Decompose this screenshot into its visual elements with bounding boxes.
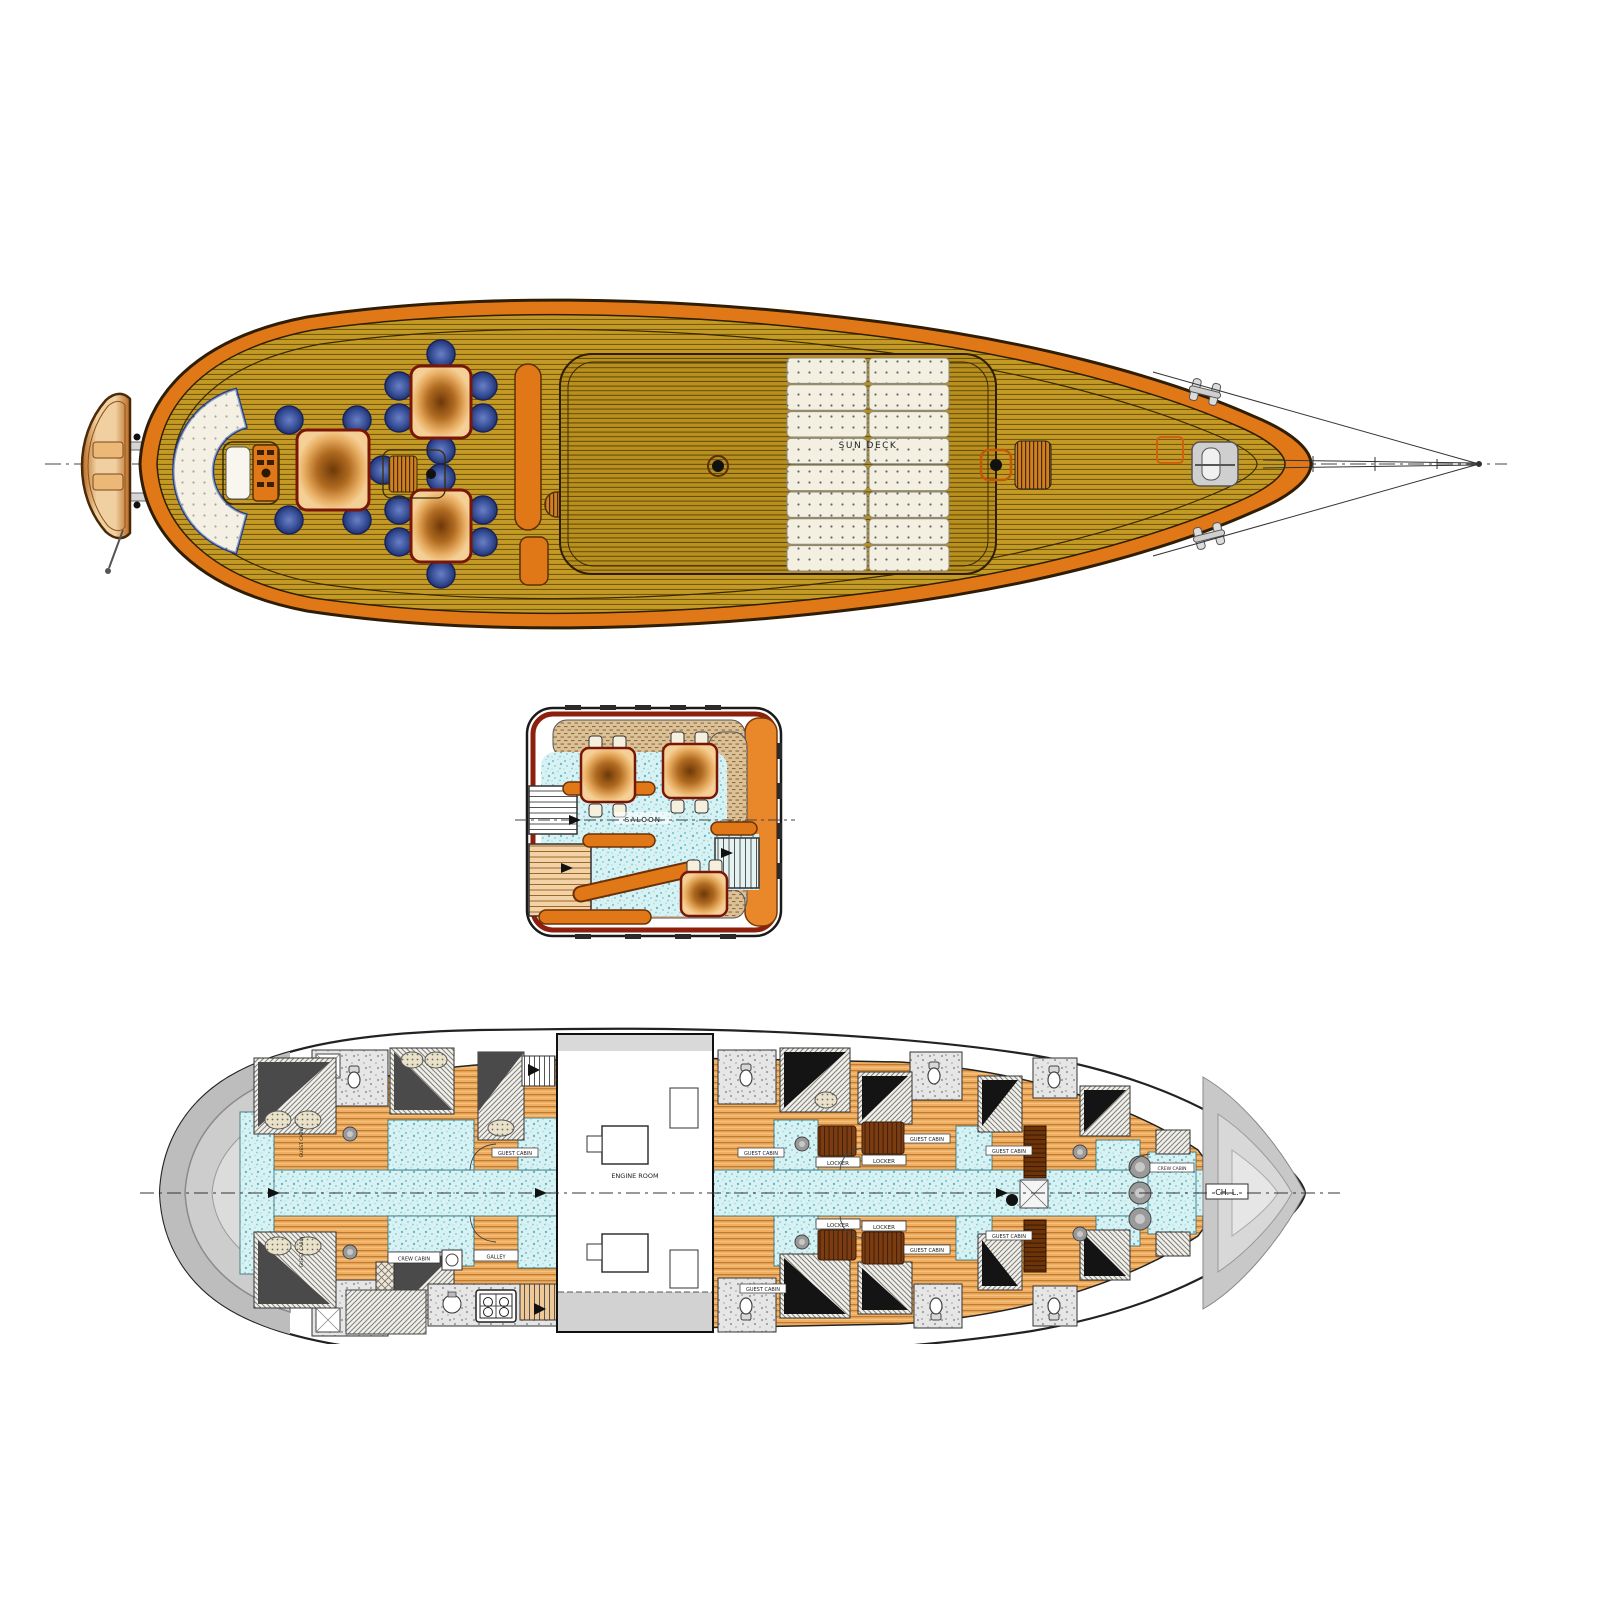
sun-deck-label: SUN DECK xyxy=(839,441,898,451)
locker-label: LOCKER xyxy=(873,1225,895,1231)
saloon-chair xyxy=(695,800,708,813)
generator xyxy=(670,1250,698,1288)
locker-cabinet xyxy=(818,1126,856,1156)
engine xyxy=(602,1126,648,1164)
engine-room: ENGINE ROOM xyxy=(557,1034,713,1332)
galley-label: GALLEY xyxy=(486,1255,506,1261)
deck-table xyxy=(297,430,369,510)
deck-chair xyxy=(275,406,303,434)
guest-cabin-label: GUEST CABIN xyxy=(992,1149,1026,1155)
crew-cabin-label: CREW CABIN xyxy=(398,1257,430,1263)
guest-cabin-label: GUEST CABIN xyxy=(910,1248,944,1254)
locker-cabinet xyxy=(1024,1220,1046,1272)
guest-cabin-label: GUEST CABIN xyxy=(299,1237,305,1268)
mizzen-mast xyxy=(1006,1194,1018,1206)
deck-chair xyxy=(427,560,455,588)
crew-cabin-label: CREW CABIN xyxy=(1158,1166,1187,1172)
void-space xyxy=(346,1290,426,1334)
main-mast xyxy=(712,460,724,472)
guest-cabin-label: GUEST CABIN xyxy=(498,1151,532,1157)
stairs-lower-left xyxy=(529,844,591,916)
sun-deck-plan: SUN DECK xyxy=(45,290,1515,640)
locker-label: LOCKER xyxy=(827,1161,849,1167)
saloon-table xyxy=(663,744,717,798)
deck-chair xyxy=(385,404,413,432)
helm-seat xyxy=(226,447,250,499)
engine xyxy=(602,1234,648,1272)
deck-chair xyxy=(385,496,413,524)
foredeck-grate xyxy=(1015,441,1051,489)
yacht-deck-plans: SUN DECK xyxy=(0,0,1600,1600)
deck-chair xyxy=(385,528,413,556)
guest-cabin-label: GUEST CABIN xyxy=(910,1137,944,1143)
galley-sink xyxy=(443,1295,461,1313)
locker-label: LOCKER xyxy=(827,1223,849,1229)
deck-chair xyxy=(385,372,413,400)
saloon-chair xyxy=(671,800,684,813)
deck-table xyxy=(411,366,471,438)
deck-chair xyxy=(469,528,497,556)
locker-cabinet xyxy=(862,1232,904,1264)
deck-chair xyxy=(427,340,455,368)
deck-table xyxy=(411,490,471,562)
deck-chair xyxy=(275,506,303,534)
washbasin xyxy=(442,1250,462,1270)
deck-chair xyxy=(469,404,497,432)
berth xyxy=(1156,1130,1190,1154)
deck-chair xyxy=(469,372,497,400)
guest-cabin-label: GUEST CABIN xyxy=(744,1151,778,1157)
berth xyxy=(1156,1232,1190,1256)
deck-bench xyxy=(515,364,541,530)
generator xyxy=(670,1088,698,1128)
guest-cabin-label: GUEST CABIN xyxy=(992,1234,1026,1240)
compass xyxy=(262,469,271,478)
companionway-stairs xyxy=(520,1284,562,1320)
saloon-deck-plan: SALOON xyxy=(515,698,795,946)
engine-room-label: ENGINE ROOM xyxy=(611,1172,658,1180)
locker-cabinet xyxy=(862,1122,904,1154)
fore-mast xyxy=(990,459,1002,471)
saloon-chair xyxy=(589,804,602,817)
companionway-stairs xyxy=(522,1056,555,1086)
companionway-hatch xyxy=(520,537,548,585)
lower-deck-plan: LOCKER LOCKER LOCKER LOCKER CREW CABIN G… xyxy=(140,1022,1340,1344)
locker-label: LOCKER xyxy=(873,1159,895,1165)
guest-cabin-label: GUEST CABIN xyxy=(746,1287,780,1293)
locker-cabinet xyxy=(818,1230,856,1260)
saloon-table xyxy=(581,748,635,802)
guest-cabin-label: GUEST CABIN xyxy=(299,1127,305,1158)
deck-chair xyxy=(469,496,497,524)
windlass xyxy=(1192,442,1238,486)
saloon-table xyxy=(681,872,727,916)
